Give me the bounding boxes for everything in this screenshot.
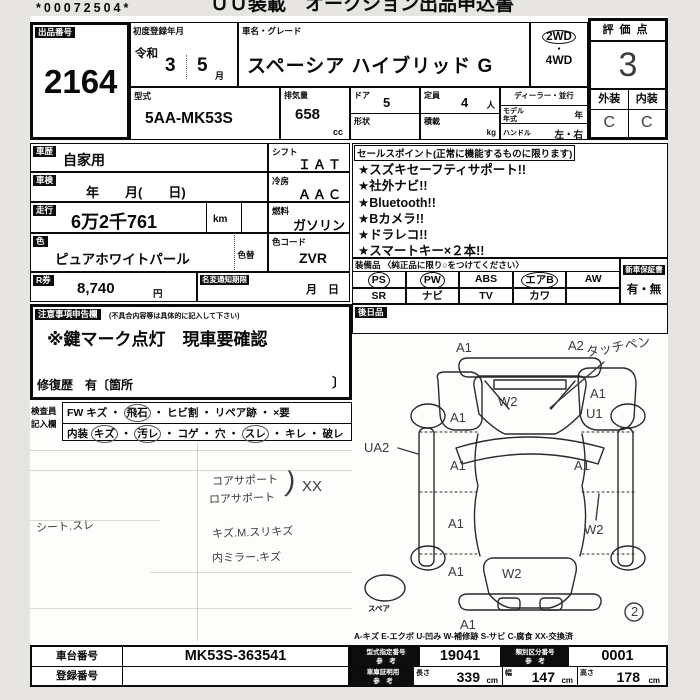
front-door-left-mark: A1 <box>450 458 466 473</box>
drive-type-cell: 2WD ・ 4WD <box>530 22 588 87</box>
inspector-separator: ・ <box>199 428 215 440</box>
inspection-label: 車検 <box>33 175 56 186</box>
equipment-cell: AW <box>566 271 620 288</box>
garage-cert-label: 車庫証明用 <box>352 669 414 678</box>
equipment-cell: TV <box>459 288 513 305</box>
mileage-label: 走行 <box>33 205 56 216</box>
displacement-value: 658 <box>295 106 320 123</box>
inspector-side-label-1: 検査員 <box>31 405 57 417</box>
caution-body: ※鍵マーク点灯 現車要確認 <box>47 325 268 350</box>
left-rocker-mark: UA2 <box>364 440 389 455</box>
garage-cert-sub: 参 考 <box>352 678 414 687</box>
note-support-xx: XX <box>302 478 322 495</box>
inspector-item: キレ <box>285 428 306 440</box>
rear-door-left-mark: A1 <box>448 516 464 531</box>
load-label: 積載 <box>424 116 440 127</box>
inspector-item: 汚レ <box>134 425 161 443</box>
inspector-item: ×要 <box>273 407 290 419</box>
class-number-value: 0001 <box>569 647 666 666</box>
registration-label: 登録番号 <box>32 667 123 686</box>
equipment-cell: PW <box>406 271 460 288</box>
mileage-unit-divider <box>206 203 207 232</box>
equipment-cell <box>566 288 620 305</box>
sales-point-item: ★スズキセーフティサポート!! <box>358 162 667 178</box>
registration-month: 5 <box>197 55 208 77</box>
sheet-number-value: 2 <box>631 604 638 619</box>
inspector-table: FW キズ ・ 飛石 ・ ヒビ割 ・ リペア跡 ・ ×要 内装 キズ ・ 汚レ … <box>62 402 352 441</box>
type-approval-label: 型式指定番号 <box>352 649 420 658</box>
chassis-value: MK53S-363541 <box>123 647 348 666</box>
form-title: ＵＵ装載 オークション出品申込書 <box>210 0 514 13</box>
drive-dot: ・ <box>531 45 587 53</box>
model-year-label: モデル年式 <box>503 108 527 123</box>
name-change-cell: 名変通知期限 月 日 <box>197 272 350 302</box>
interior-grade: C <box>629 110 666 140</box>
dealer-label: ディーラー・並行 <box>501 88 587 105</box>
inspector-side-label-2: 記入欄 <box>31 418 57 430</box>
spare-tire <box>365 575 405 601</box>
left-front-panel-mark: A1 <box>450 410 466 425</box>
form-title-clipped: ＵＵ装載 オークション出品申込書 <box>210 0 610 13</box>
inspector-separator: ・ <box>306 428 322 440</box>
inspector-item: リペア跡 <box>215 407 257 419</box>
inspector-item: 内装 <box>67 428 88 440</box>
ruling-vertical <box>197 443 198 641</box>
exterior-label: 外装 <box>591 90 629 109</box>
equipment-circled: エアB <box>521 272 558 289</box>
displacement-cell: 排気量 658 cc <box>280 87 350 140</box>
height-unit: cm <box>648 676 660 685</box>
diagram-legend: A-キズ E-エクボ U-凹み W-補修跡 S-サビ C-腐食 XX-交換済 <box>354 631 574 641</box>
displacement-label: 排気量 <box>284 90 308 101</box>
month-suffix: 月 <box>215 69 224 82</box>
note-core-support: コアサポート <box>212 471 279 489</box>
first-registration-label: 初度登録年月 <box>133 25 184 37</box>
spec-table: 型式指定番号 参 考 19041 類別区分番号 参 考 0001 車庫証明用 参… <box>350 645 668 687</box>
note-lower-support: ロアサポート <box>209 489 276 507</box>
handle-value: 左・右 <box>554 127 583 141</box>
inspector-item: ヒビ割 <box>167 407 199 419</box>
length-unit: cm <box>486 676 498 685</box>
ruling-line <box>30 450 352 451</box>
inspector-row-fw: FW キズ ・ 飛石 ・ ヒビ割 ・ リペア跡 ・ ×要 <box>63 403 351 424</box>
model-code-label: 型式 <box>134 90 151 102</box>
length-cell: 長さ 339 cm <box>414 667 503 686</box>
barcode-number: *00072504* <box>36 1 131 15</box>
history-value: 自家用 <box>63 150 105 170</box>
touch-pen-note: タッチペン <box>585 336 652 360</box>
inspector-separator: ・ <box>269 428 285 440</box>
garage-cert-cell: 車庫証明用 参 考 <box>352 667 414 686</box>
color-cell: 色 ピュアホワイトパール <box>30 233 235 272</box>
front-bumper-left-mark: A1 <box>456 340 472 355</box>
load-unit: kg <box>487 128 496 137</box>
color-code-cell: 色コード ZVR <box>268 233 350 272</box>
ac-cell: 冷房 ＡＡＣ <box>268 172 350 202</box>
sales-point-item: ★Bluetooth!! <box>358 195 667 211</box>
color-change-cell: 色替 <box>234 233 269 272</box>
registration-year: 3 <box>161 55 187 79</box>
car-damage-diagram: A1 A2 タッチペン W2 A1 U1 A1 UA2 A1 A1 A1 W2 … <box>352 336 668 642</box>
type-approval-value: 19041 <box>420 647 501 666</box>
inspector-separator: ・ <box>161 428 177 440</box>
rear-w2-tick <box>596 494 599 520</box>
right-fender-sub-mark: U1 <box>586 406 603 421</box>
ruling-line <box>30 470 352 471</box>
era-label: 令和 <box>135 45 158 61</box>
type-approval-sub: 参 考 <box>352 658 420 667</box>
repair-history-bracket: 〕 <box>332 372 345 391</box>
sales-point-item: ★ドラレコ!! <box>358 227 667 243</box>
capacity-label: 定員 <box>424 90 440 101</box>
doors-value: 5 <box>383 95 390 110</box>
registration-value <box>123 667 348 686</box>
equipment-circled: PS <box>368 272 390 289</box>
tailgate-mark: W2 <box>502 566 522 581</box>
windshield-mark: W2 <box>498 394 518 409</box>
equipment-header: 装備品 〈純正品に限り○をつけてください〉 <box>352 258 620 272</box>
history-cell: 車歴 自家用 <box>30 143 268 172</box>
width-value: 147 <box>532 669 555 685</box>
fuel-label: 燃料 <box>272 205 289 217</box>
first-registration-cell: 初度登録年月 令和 3 5 月 <box>130 22 238 87</box>
rear-bumper-mark: A1 <box>460 617 476 632</box>
mileage-cell: 走行 6万2千761 km <box>30 202 268 233</box>
sales-points-box: セールスポイント(正常に機能するものに限ります) ★スズキセーフティサポート!!… <box>352 143 668 258</box>
shift-cell: シフト ＩＡＴ <box>268 143 350 172</box>
doors-label: ドア <box>354 90 370 101</box>
caution-box: 注意事項申告欄 (不具合内容等は具体的に記入して下さい) ※鍵マーク点灯 現車要… <box>30 304 352 400</box>
model-code-value: 5AA-MK53S <box>145 110 233 128</box>
color-label: 色 <box>33 236 48 247</box>
equipment-cell: ABS <box>459 271 513 288</box>
inspector-item: コゲ <box>178 428 199 440</box>
equipment-cell: エアB <box>513 271 567 288</box>
class-number-label: 類別区分番号 <box>501 649 569 658</box>
capacity-value: 4 <box>461 95 468 110</box>
sales-point-item: ★Bカメラ!! <box>358 211 667 227</box>
inspector-row-interior: 内装 キズ ・ 汚レ ・ コゲ ・ 穴 ・ スレ ・ キレ ・ 破レ <box>63 424 351 443</box>
note-mirror: 内ミラー.キズ <box>212 548 281 565</box>
repair-history-line: 修復歴 有〔箇所 <box>37 376 133 393</box>
front-right-wheel <box>611 404 645 428</box>
sales-points-header: セールスポイント(正常に機能するものに限ります) <box>354 145 575 161</box>
name-change-label: 名変通知期限 <box>200 275 249 285</box>
ac-label: 冷房 <box>272 175 289 187</box>
lot-number-box: 出品番号 2164 <box>30 22 130 140</box>
equipment-cell: カワ <box>513 288 567 305</box>
lot-number-label: 出品番号 <box>35 27 75 38</box>
class-number-sub: 参 考 <box>501 658 569 667</box>
chassis-table: 車台番号 MK53S-363541 登録番号 <box>30 645 350 687</box>
car-name-label: 車名・グレード <box>242 25 302 37</box>
note-scratch: キズ.M.スリキズ <box>212 523 294 542</box>
warranty-cell: 新車保証書 有・無 <box>620 258 668 304</box>
spare-label: スペア <box>368 604 390 613</box>
r-ticket-value: 8,740 <box>77 280 115 297</box>
handle-label: ハンドル <box>503 128 531 138</box>
mileage-value: 6万2千761 <box>71 208 157 234</box>
inspector-item: 破レ <box>322 428 343 440</box>
interior-label: 内装 <box>629 90 666 109</box>
equipment-cell: SR <box>352 288 406 305</box>
right-rocker-rail <box>618 428 633 566</box>
width-unit: cm <box>561 676 573 685</box>
capacity-unit: 人 <box>486 99 495 111</box>
r-ticket-cell: R券 8,740 円 <box>30 272 197 302</box>
windshield-inner <box>494 380 566 389</box>
color-code-value: ZVR <box>299 250 327 266</box>
chassis-label: 車台番号 <box>32 647 123 666</box>
inspector-separator: ・ <box>225 428 241 440</box>
front-bumper-outline <box>459 358 601 377</box>
inspection-cell: 車検 年 月( 日) <box>30 172 268 202</box>
rear-quarter-left-mark: A1 <box>448 564 464 579</box>
model-code-cell: 型式 5AA-MK53S <box>130 87 280 140</box>
front-bumper-right-mark: A2 <box>568 338 584 353</box>
inspector-separator: ・ <box>118 428 134 440</box>
warranty-value: 有・無 <box>621 281 667 297</box>
drive-4wd: 4WD <box>531 53 587 67</box>
caution-label: 注意事項申告欄 <box>35 309 101 320</box>
warranty-label: 新車保証書 <box>623 265 665 275</box>
fuel-value: ガソリン <box>293 215 345 234</box>
fuel-cell: 燃料 ガソリン <box>268 202 350 233</box>
height-value: 178 <box>617 669 640 685</box>
inspector-item: 飛石 <box>124 404 151 422</box>
capacity-cell: 定員 4 人 <box>420 87 500 114</box>
note-seat: シート.スレ <box>36 516 95 535</box>
inspector-separator: ・ <box>198 407 214 419</box>
length-label: 長さ <box>416 668 430 678</box>
model-year-unit: 年 <box>574 109 583 121</box>
color-value: ピュアホワイトパール <box>55 248 190 268</box>
windshield-outline <box>474 376 586 434</box>
shape-label: 形状 <box>354 116 370 127</box>
inspection-value: 年 月( 日) <box>86 182 186 201</box>
drive-2wd-circled: 2WD <box>542 30 576 44</box>
inspector-separator: ・ <box>107 407 123 419</box>
shift-label: シフト <box>272 146 298 158</box>
mileage-blank-divider <box>241 203 242 232</box>
equipment-cell: PS <box>352 271 406 288</box>
exterior-grade: C <box>591 110 629 140</box>
evaluation-box: 評価点 3 外装 内装 C C <box>588 18 668 140</box>
dealer-parallel-cell: ディーラー・並行 モデル年式 年 ハンドル 左・右 <box>500 87 588 140</box>
inspector-item: キズ <box>91 425 118 443</box>
ua2-pointer <box>398 448 418 454</box>
body-side-right <box>580 434 586 556</box>
name-change-value: 月 日 <box>306 281 339 297</box>
type-approval-cell: 型式指定番号 参 考 <box>352 647 420 666</box>
color-code-label: 色コード <box>272 236 306 248</box>
equipment-circled: PW <box>420 272 445 289</box>
shift-value: ＩＡＴ <box>298 154 343 173</box>
car-name-value: スペーシア ハイブリッド G <box>247 51 493 78</box>
inspector-separator: ・ <box>151 407 167 419</box>
front-door-right-mark: A1 <box>574 458 590 473</box>
sales-points-list: ★スズキセーフティサポート!!★社外ナビ!!★Bluetooth!!★Bカメラ!… <box>353 162 667 260</box>
car-name-cell: 車名・グレード スペーシア ハイブリッド G <box>238 22 530 87</box>
later-items-label: 後日品 <box>355 307 387 318</box>
equipment-grid: PSPWABSエアBAWSRナビTVカワ <box>352 271 620 304</box>
ruling-line <box>30 608 352 609</box>
later-items-box: 後日品 <box>352 304 668 334</box>
lot-number-value: 2164 <box>44 63 117 101</box>
inspector-item: 穴 <box>215 428 226 440</box>
inspector-separator: ・ <box>257 407 273 419</box>
inspector-item: FW <box>67 407 83 419</box>
touch-note-pointer <box>550 362 604 408</box>
length-value: 339 <box>457 669 480 685</box>
load-cell: 積載 kg <box>420 113 500 140</box>
doors-cell: ドア 5 <box>350 87 420 114</box>
width-label: 幅 <box>505 668 512 678</box>
rear-door-right-mark: W2 <box>584 522 604 537</box>
height-label: 高さ <box>580 668 594 678</box>
r-ticket-unit: 円 <box>153 286 163 300</box>
width-cell: 幅 147 cm <box>503 667 578 686</box>
displacement-unit: cc <box>333 127 343 137</box>
color-change-label: 色替 <box>238 249 255 261</box>
inspector-item: スレ <box>242 425 269 443</box>
evaluation-score-value: 3 <box>591 42 665 88</box>
sales-point-item: ★社外ナビ!! <box>358 178 667 194</box>
class-number-cell: 類別区分番号 参 考 <box>501 647 569 666</box>
ruling-line <box>150 572 352 573</box>
body-side-left <box>474 434 480 556</box>
inspector-item: キズ <box>86 407 107 419</box>
evaluation-label: 評価点 <box>591 21 665 42</box>
history-label: 車歴 <box>33 146 56 157</box>
height-cell: 高さ 178 cm <box>578 667 666 686</box>
r-ticket-label: R券 <box>33 275 54 286</box>
left-rocker-rail <box>419 428 434 566</box>
shape-cell: 形状 <box>350 113 420 140</box>
caution-note: (不具合内容等は具体的に記入して下さい) <box>109 311 239 321</box>
ac-value: ＡＡＣ <box>298 184 343 203</box>
equipment-cell: ナビ <box>406 288 460 305</box>
right-fender-mark: A1 <box>590 386 606 401</box>
mileage-unit: km <box>213 214 227 225</box>
